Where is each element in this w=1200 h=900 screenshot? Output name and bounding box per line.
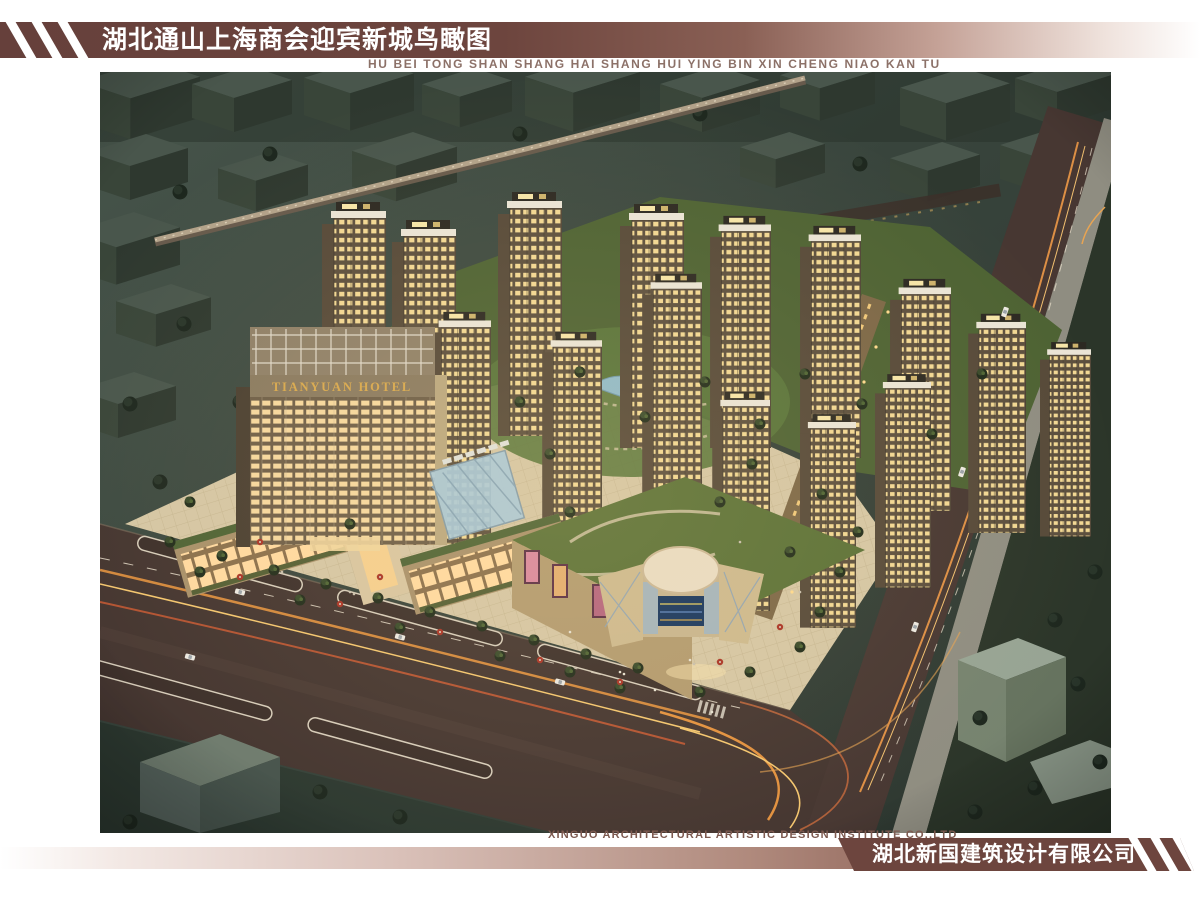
header-bar: 湖北通山上海商会迎宾新城鸟瞰图 — [0, 22, 1200, 58]
footer-diagonal-stripe — [1150, 838, 1178, 871]
page-title: 湖北通山上海商会迎宾新城鸟瞰图 — [102, 22, 492, 58]
vignette — [100, 72, 1111, 833]
header-diagonal-stripe — [58, 22, 89, 58]
header-diagonal-stripe — [6, 22, 37, 58]
footer-company-block: 湖北新国建筑设计有限公司 — [838, 838, 1194, 871]
footer-diagonal-stripe — [1172, 838, 1200, 871]
header-diagonal-stripe — [32, 22, 63, 58]
aerial-rendering: TIANYUAN HOTEL — [100, 72, 1111, 833]
design-institute-cn: 湖北新国建筑设计有限公司 — [872, 838, 1136, 871]
page-title-pinyin: HU BEI TONG SHAN SHANG HAI SHANG HUI YIN… — [368, 57, 941, 71]
